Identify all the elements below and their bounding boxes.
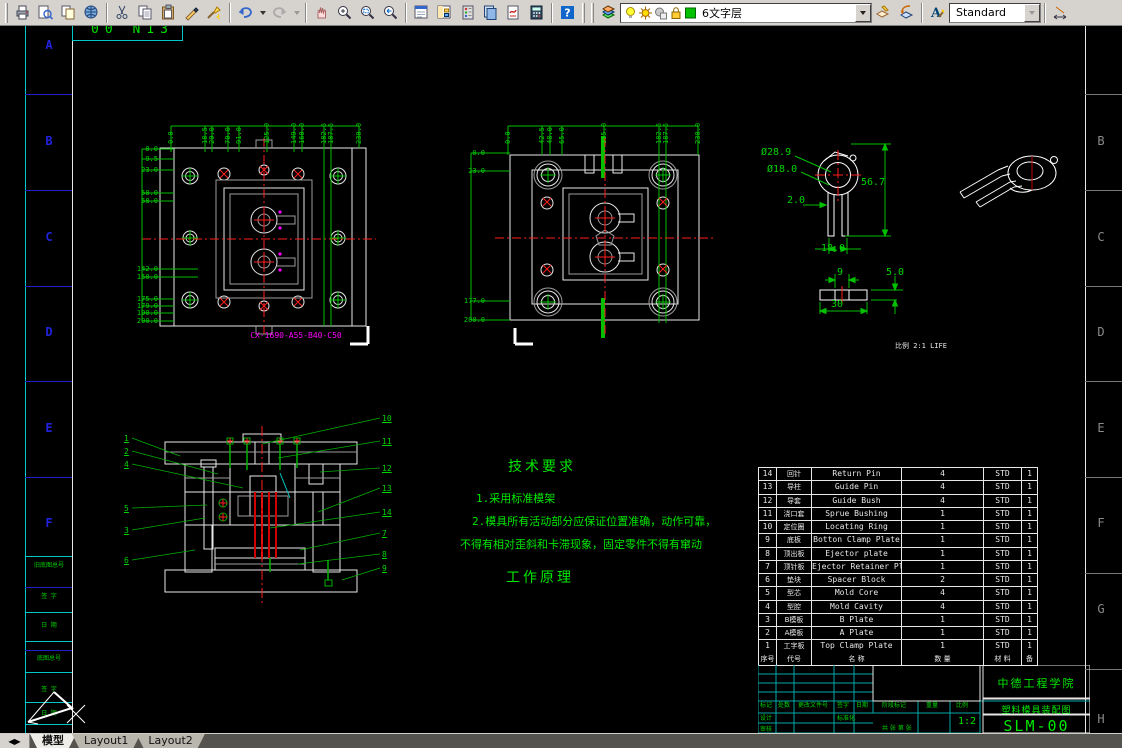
bom-header: 名 称: [812, 653, 902, 665]
publish-icon[interactable]: [57, 2, 80, 24]
zone-tick: [1085, 381, 1122, 382]
part-balloon-number: 6: [124, 556, 129, 565]
title-block-label: 签字: [837, 702, 849, 709]
dimension-label: 142.0: [128, 266, 158, 273]
bom-item-qty: 2: [902, 574, 984, 586]
bom-item-count: 1: [1022, 481, 1037, 493]
dimension-label: 18.0: [821, 244, 845, 254]
bom-item-material: STD: [984, 574, 1022, 586]
dimension-label: 5.0: [886, 268, 904, 278]
layer-combo-value: 6文字层: [698, 5, 855, 21]
dimension-label: 230.0: [356, 114, 363, 144]
tab-model[interactable]: 模型: [30, 734, 76, 748]
bom-row: 3 B模板 B Plate 1 STD 1: [759, 614, 1037, 627]
text-style-icon[interactable]: A: [926, 2, 949, 24]
crosshair-cursor: [66, 704, 86, 724]
dimension-label: 9: [837, 268, 843, 278]
bom-row: 1 工字板 Top Clamp Plate 1 STD 1: [759, 640, 1037, 652]
zone-tick: [1085, 190, 1122, 191]
bom-row: 8 顶出板 Ejector plate 1 STD 1: [759, 548, 1037, 561]
bom-item-material: STD: [984, 614, 1022, 626]
bom-item-number: 12: [759, 495, 777, 507]
zone-letter-right: F: [1090, 516, 1112, 530]
layer-combo[interactable]: 6文字层: [620, 3, 872, 23]
bom-item-number: 6: [759, 574, 777, 586]
zone-letter-right: B: [1090, 134, 1112, 148]
zone-divider: [25, 190, 72, 191]
bom-row: 14 回针 Return Pin 4 STD 1: [759, 468, 1037, 481]
bill-of-materials: 14 回针 Return Pin 4 STD 1 13 导柱 Guide Pin…: [758, 467, 1038, 666]
bom-item-material: STD: [984, 534, 1022, 546]
title-block-label: 设计: [760, 715, 772, 722]
bom-item-name: Botton Clamp Plate: [812, 534, 902, 546]
pan-realtime-icon[interactable]: [310, 2, 333, 24]
zone-letter-right: H: [1090, 712, 1112, 726]
drawing-canvas[interactable]: ABCDEF BCDEFGH 旧底图总号签 字日 期底图总号签 字日 期 00 …: [0, 26, 1122, 733]
dimension-label: 9.5: [128, 156, 158, 163]
bom-item-qty: 1: [902, 521, 984, 533]
bom-item-material: STD: [984, 521, 1022, 533]
tool-palettes-icon[interactable]: [456, 2, 479, 24]
bom-item-number: 9: [759, 534, 777, 546]
autocad-window: ? 6文字层 A Standard: [0, 0, 1122, 748]
bom-item-name: Return Pin: [812, 468, 902, 480]
bom-row: 4 型腔 Mold Cavity 4 STD 1: [759, 601, 1037, 614]
tech-requirement-2: 2.模具所有活动部分应保证位置准确，动作可靠，: [472, 513, 716, 529]
zone-letter-right: E: [1090, 421, 1112, 435]
dimension-label: 149.0: [291, 114, 298, 144]
bom-item-number: 4: [759, 601, 777, 613]
part-balloon-number: 7: [382, 529, 387, 538]
title-block-label: 标准化: [837, 715, 855, 722]
dimension-label: 23.0: [128, 167, 158, 174]
undo-dropdown[interactable]: [257, 2, 268, 24]
dimension-label: 42.5: [539, 114, 546, 144]
bom-item-material: STD: [984, 548, 1022, 560]
cut-icon[interactable]: [111, 2, 134, 24]
title-block-label: 阶段标记: [882, 702, 906, 709]
sheet-corner-box: 00 N13: [72, 26, 183, 41]
title-block-label: 日期: [856, 702, 868, 709]
toolbar-grip[interactable]: [591, 3, 594, 23]
bom-row: 9 底板 Botton Clamp Plate 1 STD 1: [759, 534, 1037, 547]
lock-icon: [668, 5, 683, 21]
dimension-label: Ø28.9: [761, 148, 791, 158]
etransmit-icon[interactable]: [80, 2, 103, 24]
layer-color-swatch: [683, 5, 698, 21]
bom-header: 代号: [777, 653, 812, 665]
border-strip-label: 底图总号: [27, 655, 71, 662]
bom-item-code: 工字板: [777, 640, 812, 652]
mold-base-code-label: CX-1690-A55-B40-C50: [206, 331, 386, 340]
bom-item-number: 14: [759, 468, 777, 480]
zone-tick: [1085, 286, 1122, 287]
strip-divider: [25, 587, 72, 588]
bom-item-code: 顶针板: [777, 561, 812, 573]
bom-item-qty: 1: [902, 614, 984, 626]
zone-divider: [25, 477, 72, 478]
bom-row: 10 定位圈 Locating Ring 1 STD 1: [759, 521, 1037, 534]
dimension-label: 230.0: [695, 114, 702, 144]
strip-divider: [25, 556, 72, 557]
bom-item-material: STD: [984, 601, 1022, 613]
bom-item-name: Guide Pin: [812, 481, 902, 493]
bom-item-material: STD: [984, 587, 1022, 599]
dimension-label: 30: [831, 300, 843, 310]
zone-letter-right: D: [1090, 325, 1112, 339]
bom-row: 11 浇口套 Sprue Bushing 1 STD 1: [759, 508, 1037, 521]
bom-item-count: 1: [1022, 495, 1037, 507]
zone-tick: [1085, 669, 1122, 670]
dimension-label: 190.0: [128, 310, 158, 317]
bom-item-count: 1: [1022, 468, 1037, 480]
title-block-label: 更改文件号: [798, 702, 828, 709]
property-painter-icon[interactable]: [203, 2, 226, 24]
plate-top-view-1: 0.09.523.050.058.0142.0150.0175.0179.019…: [128, 112, 390, 354]
dimension-label: 0.0: [128, 146, 158, 153]
border-strip-label: 日 期: [27, 622, 71, 629]
text-style-dropdown[interactable]: [1024, 4, 1040, 22]
bom-item-material: STD: [984, 495, 1022, 507]
paste-icon[interactable]: [157, 2, 180, 24]
bom-item-number: 7: [759, 561, 777, 573]
bom-item-number: 13: [759, 481, 777, 493]
plate-top-view-2: 0.023.0177.0200.0 0.042.548.065.0115.018…: [455, 112, 745, 352]
drawing-scale: 1:2: [958, 716, 976, 727]
dimension-label: Ø18.0: [767, 165, 797, 175]
bom-item-number: 2: [759, 627, 777, 639]
part-balloon-number: 2: [124, 447, 129, 456]
bom-item-qty: 1: [902, 548, 984, 560]
part-balloon-number: 13: [382, 484, 392, 493]
bom-item-name: Ejector Retainer Plate: [812, 561, 902, 573]
redo-icon[interactable]: [268, 2, 291, 24]
svg-text:?: ?: [564, 7, 570, 20]
bom-header: 备: [1022, 653, 1037, 665]
bom-item-name: Locating Ring: [812, 521, 902, 533]
dimension-label: 48.0: [547, 114, 554, 144]
bom-item-code: 顶出板: [777, 548, 812, 560]
bom-item-qty: 1: [902, 627, 984, 639]
zoom-window-icon[interactable]: [356, 2, 379, 24]
bom-item-name: B Plate: [812, 614, 902, 626]
svg-text:A: A: [930, 6, 942, 21]
tech-requirements-title: 技术要求: [508, 456, 576, 476]
dimension-label: 50.0: [128, 190, 158, 197]
title-block: 标记处数更改文件号签字日期设计审核标准化阶段标记重量比例共 张 第 张 1:2 …: [758, 665, 1090, 733]
dimension-label: 187.5: [663, 114, 670, 144]
bom-item-name: Spacer Block: [812, 574, 902, 586]
toolbar-grip[interactable]: [5, 3, 8, 23]
bom-item-qty: 1: [902, 534, 984, 546]
zone-letter-left: E: [38, 421, 60, 435]
bom-item-material: STD: [984, 640, 1022, 652]
dimension-label: 2.0: [787, 196, 805, 206]
bom-item-name: Mold Core: [812, 587, 902, 599]
title-block-label: 标记: [760, 702, 772, 709]
bom-item-code: A模板: [777, 627, 812, 639]
bom-item-qty: 1: [902, 508, 984, 520]
zone-letter-right: C: [1090, 230, 1112, 244]
bom-item-code: 型芯: [777, 587, 812, 599]
tab-layout1[interactable]: Layout1: [72, 734, 140, 748]
title-block-label: 共 张 第 张: [882, 725, 912, 732]
zone-divider: [25, 381, 72, 382]
part-balloon-number: 3: [124, 526, 129, 535]
bom-header: 序号: [759, 653, 777, 665]
strip-divider: [25, 650, 72, 651]
assembly-section-view: 124536 1011121314789: [110, 400, 412, 635]
bom-item-code: 垫块: [777, 574, 812, 586]
border-strip-label: 签 字: [27, 593, 71, 600]
bom-item-name: Sprue Bushing: [812, 508, 902, 520]
bom-item-count: 1: [1022, 640, 1037, 652]
bom-item-number: 1: [759, 640, 777, 652]
make-object-layer-current-icon[interactable]: [872, 2, 895, 24]
bom-item-code: B模板: [777, 614, 812, 626]
dimension-label: 91.0: [236, 114, 243, 144]
dimension-label: 200.0: [128, 318, 158, 325]
sheet-border-left-inner: [72, 40, 73, 733]
bom-item-count: 1: [1022, 561, 1037, 573]
bom-item-qty: 4: [902, 481, 984, 493]
help-icon[interactable]: ?: [556, 2, 579, 24]
dimension-label: 177.0: [455, 298, 485, 305]
redo-dropdown[interactable]: [291, 2, 302, 24]
bom-row: 13 导柱 Guide Pin 4 STD 1: [759, 481, 1037, 494]
bom-item-count: 1: [1022, 508, 1037, 520]
undo-icon[interactable]: [234, 2, 257, 24]
border-strip-label: 旧底图总号: [27, 562, 71, 569]
layer-combo-dropdown[interactable]: [855, 4, 871, 22]
bom-item-number: 5: [759, 587, 777, 599]
bom-item-material: STD: [984, 561, 1022, 573]
dimension-label: 160.0: [299, 114, 306, 144]
bom-item-qty: 1: [902, 561, 984, 573]
dimension-label: 65.0: [559, 114, 566, 144]
bom-item-count: 1: [1022, 574, 1037, 586]
plot-preview-icon[interactable]: [34, 2, 57, 24]
dimension-label: 150.0: [128, 274, 158, 281]
bom-item-code: 型腔: [777, 601, 812, 613]
part-balloon-number: 9: [382, 564, 387, 573]
part-balloon-number: 4: [124, 460, 129, 469]
strip-divider: [25, 612, 72, 613]
toolbar-grip[interactable]: [582, 3, 585, 23]
title-block-label: 比例: [956, 702, 968, 709]
dimension-label: 20.0: [209, 114, 216, 144]
part-balloon-number: 1: [124, 434, 129, 443]
bom-item-material: STD: [984, 508, 1022, 520]
bom-item-name: Ejector plate: [812, 548, 902, 560]
dimension-label: 0.0: [168, 114, 175, 144]
bom-item-number: 8: [759, 548, 777, 560]
text-style-combo[interactable]: Standard: [949, 3, 1041, 23]
bom-item-material: STD: [984, 627, 1022, 639]
dimension-label: 200.0: [455, 317, 485, 324]
freeze-icon: [653, 5, 668, 21]
bom-row: 2 A模板 A Plate 1 STD 1: [759, 627, 1037, 640]
part-balloon-number: 8: [382, 550, 387, 559]
part-isometric-view: [950, 140, 1070, 210]
markup-set-manager-icon[interactable]: [502, 2, 525, 24]
dimension-label: 56.7: [861, 178, 885, 188]
dimension-label: 125.0: [264, 114, 271, 144]
bom-item-count: 1: [1022, 587, 1037, 599]
dim-style-icon[interactable]: [1049, 2, 1072, 24]
zone-letter-left: D: [38, 325, 60, 339]
bom-item-number: 10: [759, 521, 777, 533]
bom-item-qty: 4: [902, 601, 984, 613]
zone-letter-left: A: [38, 38, 60, 52]
bom-item-count: 1: [1022, 627, 1037, 639]
zone-letter-left: B: [38, 134, 60, 148]
main-toolbar: ? 6文字层 A Standard: [0, 0, 1122, 26]
tech-requirement-2b: 不得有相对歪斜和卡滞现象，固定零件不得有窜动: [460, 536, 702, 552]
part-balloon-number: 14: [382, 508, 392, 517]
zone-tick: [1085, 573, 1122, 574]
bom-item-count: 1: [1022, 601, 1037, 613]
bom-item-code: 导套: [777, 495, 812, 507]
sheetset-manager-icon[interactable]: [479, 2, 502, 24]
drawing-title: 塑料模具装配图: [983, 703, 1090, 716]
dimension-label: 0.0: [455, 150, 485, 157]
bom-item-qty: 1: [902, 640, 984, 652]
layer-previous-icon[interactable]: [895, 2, 918, 24]
bom-item-count: 1: [1022, 548, 1037, 560]
zone-tick: [1085, 477, 1122, 478]
zone-letter-left: C: [38, 230, 60, 244]
layout-tab-bar: ◀▶ 模型 Layout1 Layout2: [0, 733, 1122, 748]
title-block-label: 审核: [760, 726, 772, 733]
dimension-label: 187.5: [328, 114, 335, 144]
part-balloon-number: 5: [124, 504, 129, 513]
bom-item-name: A Plate: [812, 627, 902, 639]
dimension-label: 115.0: [601, 114, 608, 144]
sheet-corner-text: 00 N13: [91, 26, 174, 37]
part-balloon-number: 10: [382, 414, 392, 423]
zoom-realtime-icon[interactable]: [333, 2, 356, 24]
title-block-label: 重量: [926, 702, 938, 709]
copy-icon[interactable]: [134, 2, 157, 24]
bom-item-code: 回针: [777, 468, 812, 480]
bom-item-name: Mold Cavity: [812, 601, 902, 613]
bom-row: 12 导套 Guide Bush 4 STD 1: [759, 495, 1037, 508]
bom-row: 5 型芯 Mold Core 4 STD 1: [759, 587, 1037, 600]
part-detail-view: Ø28.9Ø18.056.72.018.095.030 比例 2:1 LIFE: [745, 130, 945, 350]
company-name: 中德工程学院: [983, 675, 1090, 691]
zone-tick: [1085, 94, 1122, 95]
bulb-icon: [623, 5, 638, 21]
strip-divider: [25, 641, 72, 642]
bom-item-qty: 4: [902, 468, 984, 480]
tech-requirement-1: 1.采用标准模架: [476, 490, 555, 506]
part-balloon-number: 12: [382, 464, 392, 473]
bom-item-material: STD: [984, 481, 1022, 493]
strip-divider: [25, 672, 72, 673]
working-principle-title: 工作原理: [506, 567, 574, 587]
layers-icon[interactable]: [597, 2, 620, 24]
bom-row: 7 顶针板 Ejector Retainer Plate 1 STD 1: [759, 561, 1037, 574]
bom-item-code: 底板: [777, 534, 812, 546]
dimension-label: 70.0: [225, 114, 232, 144]
tab-layout2[interactable]: Layout2: [136, 734, 204, 748]
match-properties-icon[interactable]: [180, 2, 203, 24]
sheet-border-left-outer: [25, 26, 26, 733]
bom-item-name: Guide Bush: [812, 495, 902, 507]
designcenter-icon[interactable]: [433, 2, 456, 24]
properties-icon[interactable]: [410, 2, 433, 24]
dimension-label: 23.0: [455, 168, 485, 175]
zone-divider: [25, 94, 72, 95]
bom-item-number: 11: [759, 508, 777, 520]
bom-item-code: 浇口套: [777, 508, 812, 520]
bom-row: 6 垫块 Spacer Block 2 STD 1: [759, 574, 1037, 587]
text-style-value: Standard: [952, 6, 1024, 19]
zone-letter-left: F: [38, 516, 60, 530]
layout-tab-nav[interactable]: ◀▶: [0, 734, 30, 748]
bom-item-code: 导柱: [777, 481, 812, 493]
bom-header: 材 料: [984, 653, 1022, 665]
bom-item-count: 1: [1022, 614, 1037, 626]
bom-item-number: 3: [759, 614, 777, 626]
sheet-border-right: [1085, 26, 1086, 733]
zone-letter-right: G: [1090, 602, 1112, 616]
bom-item-name: Top Clamp Plate: [812, 640, 902, 652]
bom-item-count: 1: [1022, 521, 1037, 533]
sun-icon: [638, 5, 653, 21]
title-block-label: 处数: [778, 702, 790, 709]
zone-divider: [25, 286, 72, 287]
plot-icon[interactable]: [11, 2, 34, 24]
part-balloon-number: 11: [382, 437, 392, 446]
zoom-previous-icon[interactable]: [379, 2, 402, 24]
bom-item-qty: 4: [902, 495, 984, 507]
quickcalc-icon[interactable]: [525, 2, 548, 24]
dimension-label: 58.0: [128, 198, 158, 205]
bom-item-material: STD: [984, 468, 1022, 480]
bom-header: 数 量: [902, 653, 984, 665]
bom-header-row: 序号 代号 名 称 数 量 材 料 备: [759, 653, 1037, 665]
bom-item-qty: 4: [902, 587, 984, 599]
dimension-label: 0.0: [505, 114, 512, 144]
drawing-number: SLM-00: [983, 717, 1090, 733]
bom-item-count: 1: [1022, 534, 1037, 546]
bom-item-code: 定位圈: [777, 521, 812, 533]
detail-scale-note: 比例 2:1 LIFE: [895, 341, 947, 351]
